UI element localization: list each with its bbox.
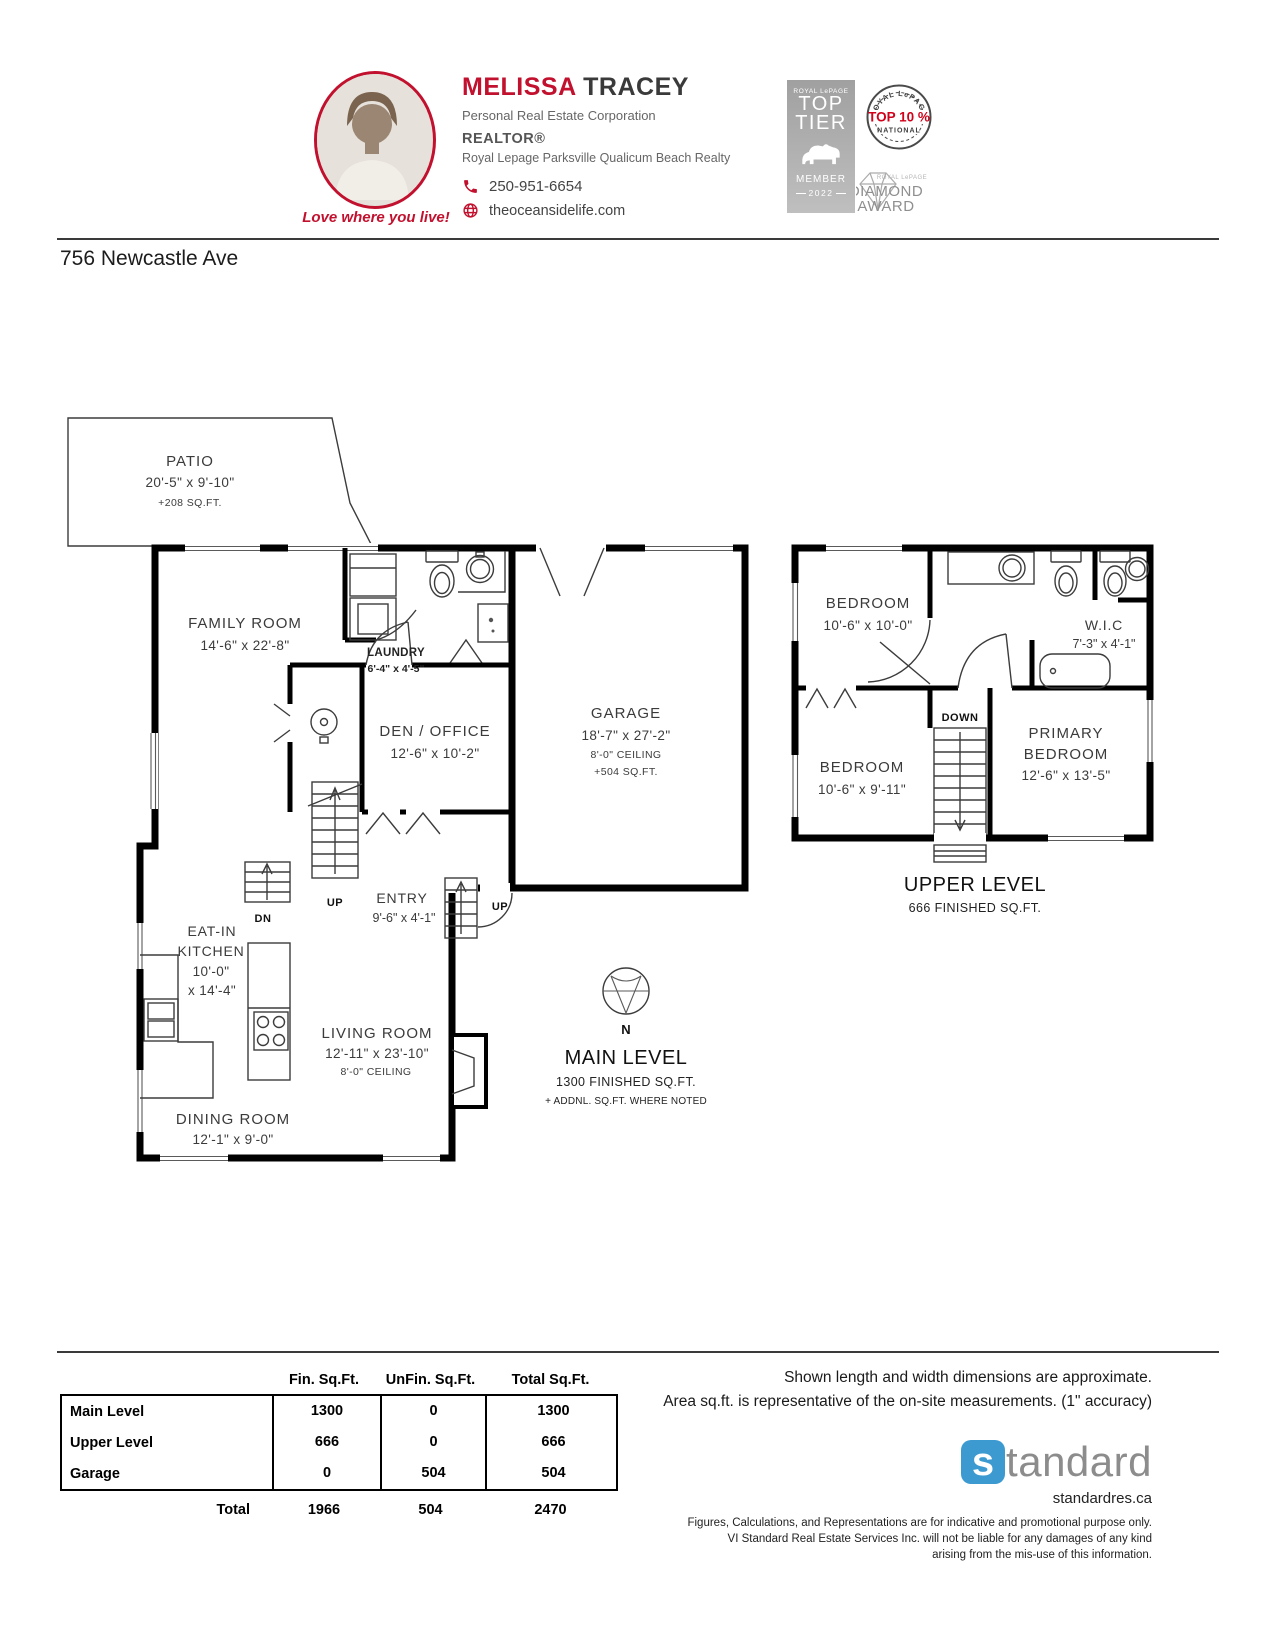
row-fin: 1300 [272, 1396, 380, 1427]
top-divider [57, 238, 1219, 240]
bedroom2-label: BEDROOM [820, 759, 905, 776]
family-room-dims: 14'-6" x 22'-8" [200, 638, 289, 653]
row-fin: 0 [272, 1458, 380, 1489]
kitchen-label-1: EAT-IN [188, 923, 237, 939]
row-fin: 666 [272, 1427, 380, 1458]
website-row: theoceansidelife.com [462, 202, 762, 219]
top-tier-badge: ROYAL LePAGE TOP TIER MEMBER 2022 [787, 80, 855, 213]
living-room-dims: 12'-11" x 23'-10" [325, 1046, 429, 1061]
total-fin: 1966 [270, 1502, 378, 1518]
top-tier-year-value: 2022 [809, 188, 834, 198]
top-10-sub: NATIONAL [877, 128, 921, 135]
stairs-dn-label: DN [255, 913, 272, 925]
main-level-area: 1300 FINISHED SQ.FT. [556, 1075, 696, 1089]
patio-label: PATIO [166, 453, 214, 470]
stairs-up-label: UP [327, 897, 343, 909]
table-total-row: Total 1966 504 2470 [60, 1498, 618, 1522]
globe-icon [462, 202, 479, 219]
entry-dims: 9'-6" x 4'-1" [373, 911, 436, 925]
dimension-notes: Shown length and width dimensions are ap… [650, 1366, 1152, 1414]
agent-title: Personal Real Estate Corporation [462, 108, 762, 123]
ceiling-light-icon [311, 709, 337, 743]
upper-level-area: 666 FINISHED SQ.FT. [909, 901, 1042, 915]
note-line-1: Shown length and width dimensions are ap… [650, 1366, 1152, 1390]
laundry-dims: 6'-4" x 4'-5" [368, 663, 425, 675]
window-markers [135, 543, 733, 1163]
col-header-unfin: UnFin. Sq.Ft. [378, 1372, 483, 1388]
utility-sink-icon [450, 604, 508, 663]
property-address: 756 Newcastle Ave [60, 247, 238, 271]
upper-window-markers [790, 543, 1155, 843]
agent-designation: REALTOR® [462, 131, 762, 147]
main-level-title: MAIN LEVEL [565, 1047, 688, 1069]
row-unfin: 0 [380, 1396, 485, 1427]
bottom-divider [57, 1351, 1219, 1353]
diamond-word2: AWARD [857, 198, 914, 215]
table-row-garage: Garage 0 504 504 [62, 1458, 616, 1489]
kitchen-label-2: KITCHEN [177, 943, 244, 959]
disclaimer-line-2: VI Standard Real Estate Services Inc. wi… [650, 1532, 1152, 1548]
total-total: 2470 [483, 1502, 618, 1518]
bedroom2-dims: 10'-6" x 9'-11" [818, 782, 906, 797]
patio-area: PATIO 20'-5" x 9'-10" +208 SQ.FT. [68, 418, 372, 546]
sink-icon [458, 551, 505, 592]
compass-north-label: N [621, 1022, 630, 1037]
row-label: Garage [62, 1466, 272, 1482]
living-room-label: LIVING ROOM [321, 1025, 432, 1042]
top-10-badge: ROYAL LePAGE TOP 10 % NATIONAL [865, 83, 933, 151]
row-total: 504 [485, 1458, 620, 1489]
table-row-upper-level: Upper Level 666 0 666 [62, 1427, 616, 1458]
phone-icon [462, 178, 479, 195]
logo-wordmark: tandard [1006, 1438, 1152, 1486]
row-label: Main Level [62, 1404, 272, 1420]
row-unfin: 0 [380, 1427, 485, 1458]
disclaimer-line-3: arising from the mis-use of this informa… [650, 1548, 1152, 1564]
top-tier-member: MEMBER [787, 174, 855, 185]
standard-logo: standard [961, 1438, 1152, 1486]
primary-bedroom-label-2: BEDROOM [1024, 746, 1109, 763]
main-level-note: + ADDNL. SQ.FT. WHERE NOTED [545, 1096, 707, 1107]
floorplan-flyer-page: Love where you live! MELISSA TRACEY Pers… [0, 0, 1275, 1650]
agent-header: Love where you live! MELISSA TRACEY Pers… [300, 55, 980, 233]
garage-dims: 18'-7" x 27'-2" [581, 728, 670, 743]
agent-tagline: Love where you live! [286, 209, 466, 226]
floor-plan-drawing: PATIO 20'-5" x 9'-10" +208 SQ.FT. [0, 400, 1275, 1170]
agent-website: theoceansidelife.com [489, 203, 625, 219]
kitchen-island-stove [248, 943, 290, 1080]
primary-bedroom-label-1: PRIMARY [1028, 725, 1103, 742]
family-room-label: FAMILY ROOM [188, 615, 302, 632]
agent-name: MELISSA TRACEY [462, 73, 762, 102]
top-tier-word2: TIER [787, 114, 855, 133]
phone-row: 250-951-6654 [462, 178, 762, 195]
wic-label: W.I.C [1085, 617, 1123, 633]
agent-info: MELISSA TRACEY Personal Real Estate Corp… [462, 73, 762, 219]
sqft-table-header: Fin. Sq.Ft. UnFin. Sq.Ft. Total Sq.Ft. [60, 1368, 618, 1392]
bedroom1-dims: 10'-6" x 10'-0" [823, 618, 912, 633]
stairs-down-upper [934, 728, 986, 862]
row-unfin: 504 [380, 1458, 485, 1489]
logo-website: standardres.ca [650, 1490, 1152, 1507]
top-10-label: TOP 10 % [868, 110, 930, 125]
stairs-up-main [308, 782, 362, 878]
laundry-label: LAUNDRY [367, 647, 425, 659]
logo-s-icon: s [961, 1440, 1005, 1484]
row-total: 666 [485, 1427, 620, 1458]
living-room-ceiling: 8'-0" CEILING [340, 1066, 411, 1078]
upper-level-plan: DOWN BEDROOM 10'-6" x 10'-0" BEDROOM 10'… [790, 543, 1155, 862]
patio-dims: 20'-5" x 9'-10" [145, 475, 234, 490]
wic-dims: 7'-3" x 4'-1" [1073, 637, 1136, 651]
diamond-award-badge: ROYAL LePAGE DIAMOND AWARD [856, 165, 956, 215]
col-header-total: Total Sq.Ft. [483, 1372, 618, 1388]
kitchen-dims-1: 10'-0" [193, 964, 230, 979]
agent-last-name: TRACEY [583, 73, 689, 101]
note-line-2: Area sq.ft. is representative of the on-… [650, 1390, 1152, 1414]
toilet-icon [426, 551, 458, 597]
den-office-label: DEN / OFFICE [379, 723, 490, 740]
laundry-bath-walls [345, 548, 416, 640]
dining-room-label: DINING ROOM [176, 1111, 290, 1128]
agent-photo [314, 71, 436, 209]
agent-brokerage: Royal Lepage Parksville Qualicum Beach R… [462, 151, 762, 165]
den-office-dims: 12'-6" x 10'-2" [390, 746, 479, 761]
main-level-plan: UP DN ENTRY 9'-6" x 4'-1" UP [135, 543, 745, 1163]
stairs-up2-label: UP [492, 901, 508, 913]
primary-bedroom-dims: 12'-6" x 13'-5" [1021, 768, 1110, 783]
total-label: Total [60, 1502, 270, 1518]
agent-phone: 250-951-6654 [489, 178, 582, 195]
standard-logo-block: standard standardres.ca [650, 1438, 1152, 1507]
total-unfin: 504 [378, 1502, 483, 1518]
garage-label: GARAGE [591, 705, 661, 722]
patio-area-note: +208 SQ.FT. [158, 497, 222, 509]
top-tier-year: 2022 [787, 188, 855, 198]
table-row-main-level: Main Level 1300 0 1300 [62, 1396, 616, 1427]
agent-first-name: MELISSA [462, 73, 576, 101]
compass-icon [603, 968, 649, 1014]
dining-room-dims: 12'-1" x 9'-0" [192, 1132, 273, 1147]
row-total: 1300 [485, 1396, 620, 1427]
stairs-down-label: DOWN [942, 712, 979, 724]
upper-level-title: UPPER LEVEL [904, 874, 1046, 896]
avatar [317, 74, 427, 200]
disclaimer: Figures, Calculations, and Representatio… [650, 1516, 1152, 1564]
disclaimer-line-1: Figures, Calculations, and Representatio… [650, 1516, 1152, 1532]
kitchen-dims-2: x 14'-4" [188, 983, 236, 998]
bedroom1-label: BEDROOM [826, 595, 911, 612]
sqft-table: Fin. Sq.Ft. UnFin. Sq.Ft. Total Sq.Ft. M… [60, 1368, 618, 1522]
col-header-fin: Fin. Sq.Ft. [270, 1372, 378, 1388]
row-label: Upper Level [62, 1435, 272, 1451]
garage-ceiling: 8'-0" CEILING [590, 749, 661, 761]
garage-area: +504 SQ.FT. [594, 766, 658, 778]
polar-bear-icon [787, 138, 855, 171]
entry-label: ENTRY [376, 890, 427, 906]
fireplace-icon [452, 1035, 486, 1107]
stairs-down-main [245, 862, 290, 902]
diamond-brand: ROYAL LePAGE [877, 175, 927, 181]
